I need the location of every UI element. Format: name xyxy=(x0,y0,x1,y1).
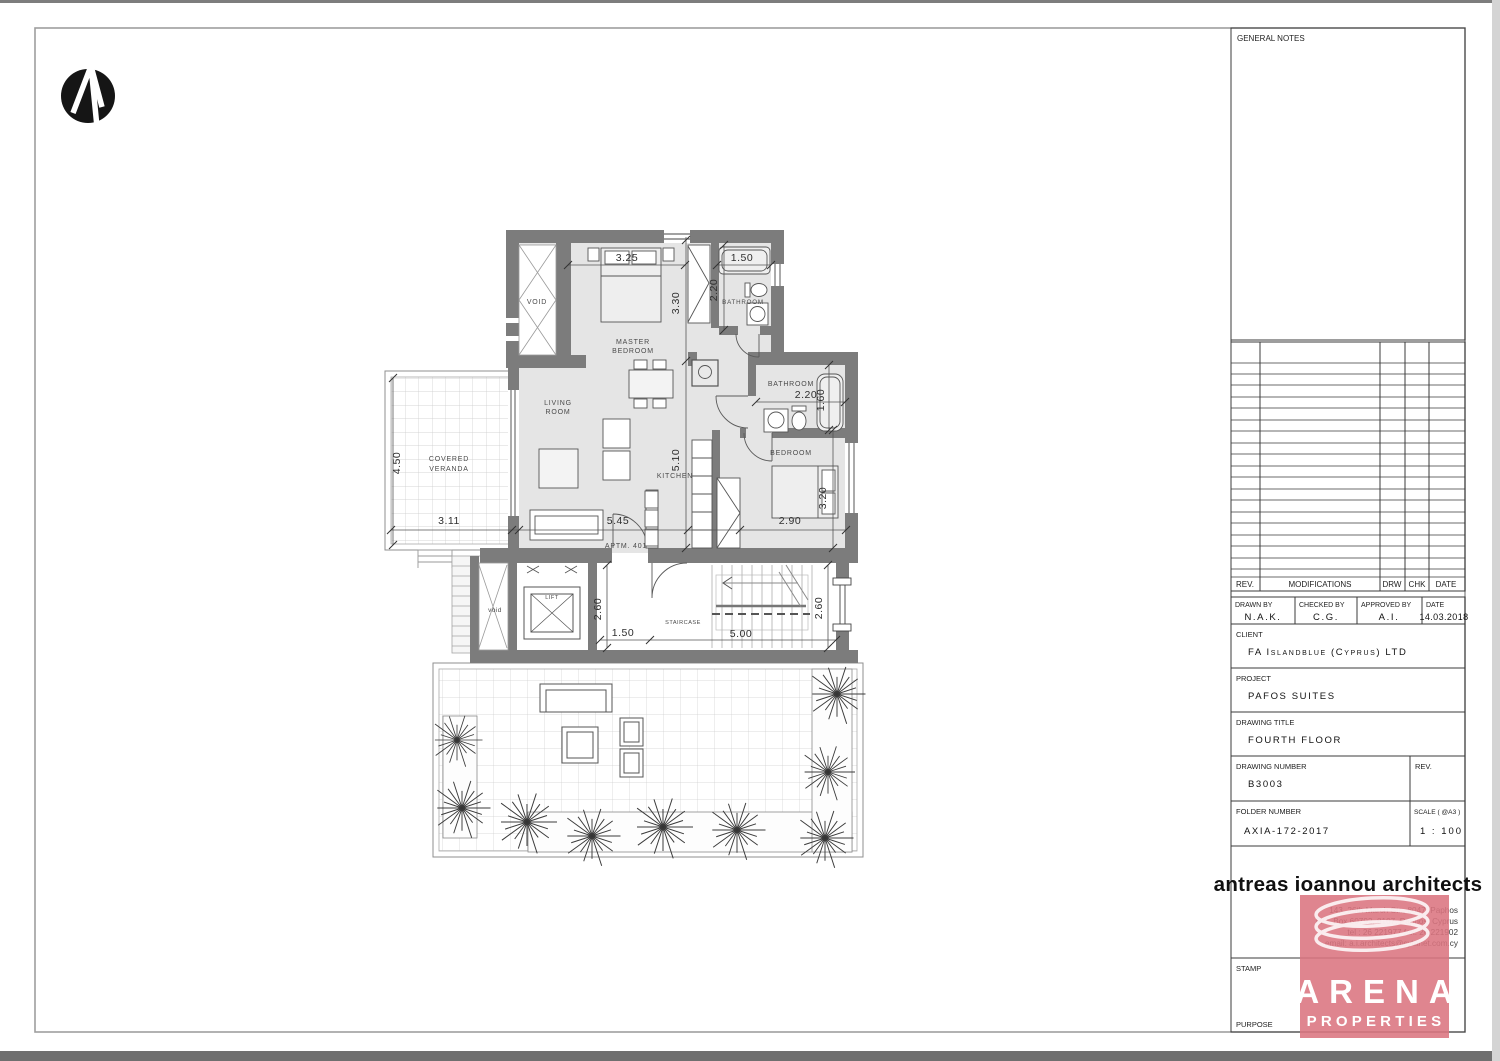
lift xyxy=(524,566,580,639)
dim-hall-width: 1.50 xyxy=(612,627,634,639)
label-lift: LIFT xyxy=(545,595,559,601)
drawn-by-label: DRAWN BY xyxy=(1235,602,1273,609)
drawing-number-label: DRAWING NUMBER xyxy=(1236,762,1307,771)
label-kitchen: KITCHEN xyxy=(657,473,693,480)
watermark-line2: PROPERTIES xyxy=(1307,1013,1446,1030)
title-block-text: GENERAL NOTES REV. MODIFICATIONS DRW CHK… xyxy=(1214,34,1483,1029)
terrace xyxy=(433,663,866,868)
dim-master-height: 3.30 xyxy=(670,292,682,314)
scale-value: 1 : 100 xyxy=(1420,826,1463,837)
dim-living-width: 5.45 xyxy=(607,515,629,527)
label-living-line2: ROOM xyxy=(546,409,571,416)
drawing-title-label: DRAWING TITLE xyxy=(1236,718,1294,727)
dim-master-width: 3.25 xyxy=(616,252,638,264)
signoff-date-label: DATE xyxy=(1426,602,1444,609)
dim-stair-width: 5.00 xyxy=(730,628,752,640)
label-apartment: APTM. 401 xyxy=(605,543,647,550)
north-arrow-icon xyxy=(61,66,115,127)
folder-number-value: AXIA-172-2017 xyxy=(1244,826,1330,837)
label-void-top: VOID xyxy=(527,299,547,306)
signoff-date-value: 14.03.2018 xyxy=(1419,612,1468,622)
label-bathroom-top: BATHROOM xyxy=(722,299,764,306)
label-void-lower: void xyxy=(488,607,502,614)
scan-edge-bottom xyxy=(0,1051,1500,1061)
arena-watermark: ARENA PROPERTIES xyxy=(1295,895,1462,1038)
stamp-label: STAMP xyxy=(1236,964,1261,973)
dim-bath-mid-height: 1.60 xyxy=(815,389,827,411)
dim-bedroom-width: 2.90 xyxy=(779,515,801,527)
approved-by-value: A.I. xyxy=(1379,612,1400,623)
project-label: PROJECT xyxy=(1236,674,1271,683)
date-col-label: DATE xyxy=(1436,580,1457,589)
drawn-by-value: N.A.K. xyxy=(1244,612,1281,623)
drawing-number-value: B3003 xyxy=(1248,779,1283,790)
label-master-line1: MASTER xyxy=(616,339,650,346)
modifications-col-label: MODIFICATIONS xyxy=(1289,580,1352,589)
label-staircase: STAIRCASE xyxy=(665,620,701,626)
checked-by-label: CHECKED BY xyxy=(1299,602,1345,609)
label-veranda-line2: VERANDA xyxy=(429,466,468,473)
watermark-line1: ARENA xyxy=(1295,973,1462,1010)
general-notes-label: GENERAL NOTES xyxy=(1237,34,1305,43)
dim-bath-top-height: 2.20 xyxy=(708,279,720,301)
client-value: FA Islandblue (Cyprus) LTD xyxy=(1248,647,1407,658)
dim-veranda-width: 3.11 xyxy=(438,515,460,527)
scan-edge-right xyxy=(1492,0,1500,1061)
floor-plan-sheet-svg: 3.25 1.50 2.20 3.30 5.10 5.45 4.50 3.11 … xyxy=(0,0,1500,1061)
veranda-steps xyxy=(418,550,452,568)
dim-bedroom-height: 3.20 xyxy=(817,487,829,509)
dim-hall-left-height: 2.60 xyxy=(592,598,604,620)
scan-edge-top xyxy=(0,0,1500,3)
planter-bottom xyxy=(528,812,852,852)
drw-col-label: DRW xyxy=(1383,580,1402,589)
folder-number-label: FOLDER NUMBER xyxy=(1236,807,1302,816)
label-bedroom: BEDROOM xyxy=(770,450,812,457)
rev-label: REV. xyxy=(1415,762,1432,771)
dim-veranda-height: 4.50 xyxy=(391,452,403,474)
dim-hall-right-height: 2.60 xyxy=(813,597,825,619)
project-value: PAFOS SUITES xyxy=(1248,691,1336,702)
checked-by-value: C.G. xyxy=(1313,612,1339,623)
scale-label: SCALE ( @A3 ) xyxy=(1414,809,1460,816)
label-bathroom-mid: BATHROOM xyxy=(768,381,814,388)
firm-name: antreas ioannou architects xyxy=(1214,873,1483,896)
drawing-title-value: FOURTH FLOOR xyxy=(1248,735,1342,746)
label-living-line1: LIVING xyxy=(544,400,572,407)
client-label: CLIENT xyxy=(1236,630,1263,639)
dim-bath-top-width: 1.50 xyxy=(731,252,753,264)
label-master-line2: BEDROOM xyxy=(612,348,654,355)
purpose-label: PURPOSE xyxy=(1236,1020,1273,1029)
approved-by-label: APPROVED BY xyxy=(1361,602,1412,609)
dim-bath-mid-width: 2.20 xyxy=(795,389,817,401)
staircase xyxy=(712,565,812,648)
chk-col-label: CHK xyxy=(1409,580,1427,589)
dim-living-height: 5.10 xyxy=(670,449,682,471)
drawing-sheet: 3.25 1.50 2.20 3.30 5.10 5.45 4.50 3.11 … xyxy=(0,0,1500,1061)
rev-col-label: REV. xyxy=(1236,580,1254,589)
label-veranda-line1: COVERED xyxy=(429,456,469,463)
planter-left xyxy=(443,716,477,838)
